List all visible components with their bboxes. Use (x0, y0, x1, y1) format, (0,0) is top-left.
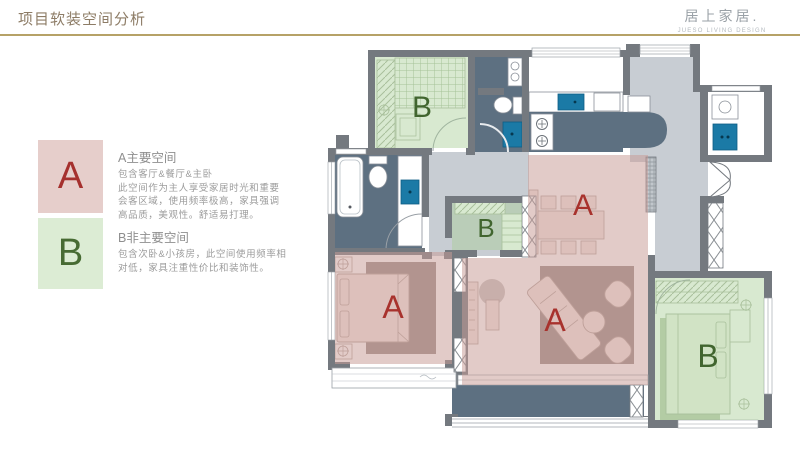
zone-label-kids-room: B (477, 213, 494, 243)
floor-plan: B B B A A A (0, 0, 800, 450)
kitchen (529, 92, 667, 152)
zone-label-living: A (544, 302, 566, 338)
entry-door (710, 162, 730, 197)
zone-label-bedroom-bottom-right: B (697, 338, 718, 374)
zone-label-bedroom-top-left: B (412, 91, 432, 124)
zone-label-master: A (382, 289, 404, 325)
zone-label-dining: A (573, 189, 593, 222)
utility-closet (712, 95, 738, 150)
slide: 项目软装空间分析 居上家居. JUESO LIVING DESIGN A A主要… (0, 0, 800, 450)
